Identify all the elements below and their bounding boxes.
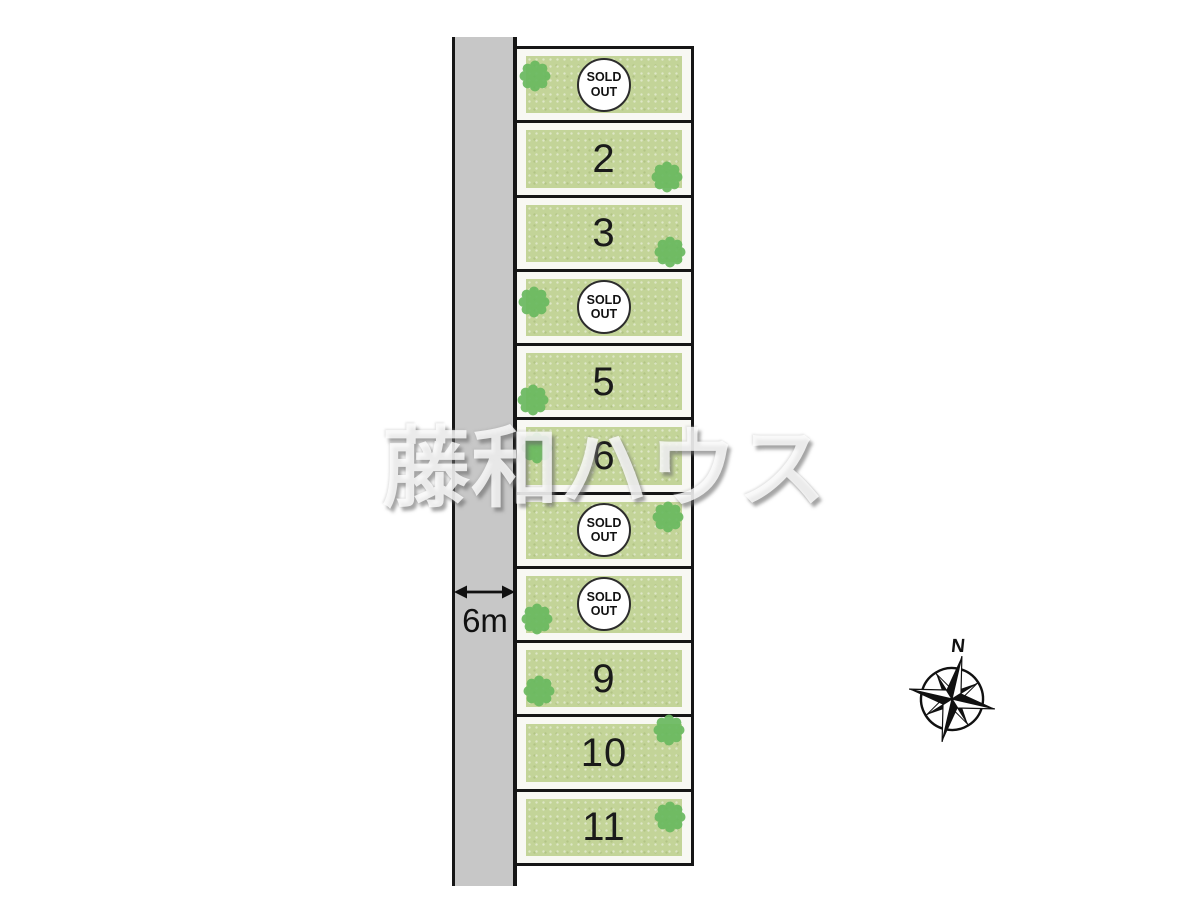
lot-6: 6 — [517, 420, 691, 494]
site-plan: 6m SOLD OUT 2 3 SOLD OUT 5 — [0, 0, 1200, 900]
compass: N — [905, 636, 999, 748]
lot-9: 9 — [517, 643, 691, 717]
lot-number: 9 — [592, 659, 615, 699]
lot-8: SOLD OUT — [517, 569, 691, 643]
compass-rose-icon — [905, 652, 999, 746]
tree-icon — [519, 430, 555, 466]
tree-icon — [649, 159, 685, 195]
sold-out-badge: SOLD OUT — [577, 503, 631, 557]
road — [452, 37, 517, 886]
lot-3: 3 — [517, 198, 691, 272]
lot-2: 2 — [517, 123, 691, 197]
lot-5: 5 — [517, 346, 691, 420]
sold-out-badge: SOLD OUT — [577, 58, 631, 112]
lot-number: 2 — [592, 139, 615, 179]
lot-number: 6 — [592, 436, 615, 476]
road-width-label: 6m — [450, 604, 520, 637]
tree-icon — [515, 382, 551, 418]
lot-number: 10 — [581, 733, 628, 773]
lot-number: 3 — [592, 213, 615, 253]
lot-number: 11 — [582, 807, 626, 847]
lot-7: SOLD OUT — [517, 495, 691, 569]
tree-icon — [651, 712, 687, 748]
lot-1: SOLD OUT — [517, 49, 691, 123]
lot-number: 5 — [592, 362, 615, 402]
tree-icon — [652, 234, 688, 270]
tree-icon — [652, 799, 688, 835]
tree-icon — [519, 601, 555, 637]
tree-icon — [521, 673, 557, 709]
tree-icon — [517, 58, 553, 94]
tree-icon — [650, 499, 686, 535]
road-width-arrow-icon — [454, 583, 515, 601]
tree-icon — [516, 284, 552, 320]
lot-4: SOLD OUT — [517, 272, 691, 346]
lot-11: 11 — [517, 792, 691, 863]
lot-10: 10 — [517, 717, 691, 791]
lot-column: SOLD OUT 2 3 SOLD OUT 5 6 — [514, 46, 694, 866]
